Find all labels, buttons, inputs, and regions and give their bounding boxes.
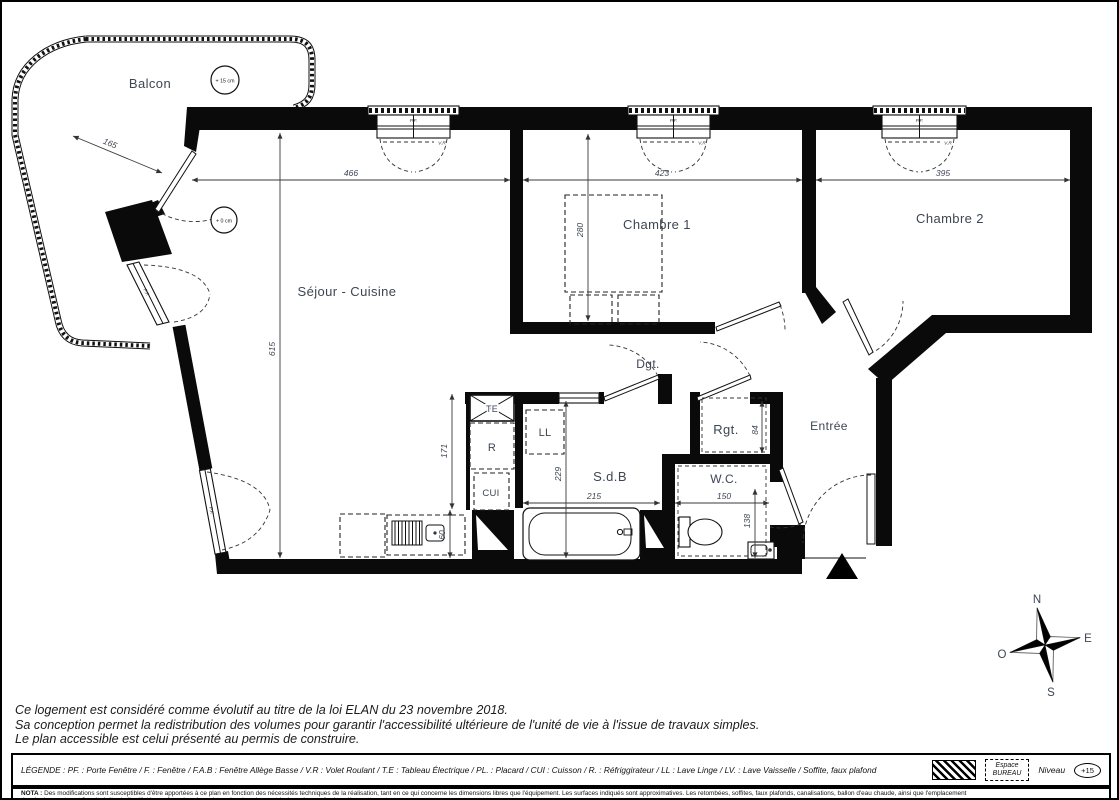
svg-text:84: 84	[750, 425, 760, 435]
svg-text:215: 215	[586, 491, 601, 501]
compass-rose: N E S O	[998, 594, 1093, 699]
compass-south: S	[1047, 687, 1055, 699]
svg-text:150: 150	[717, 491, 731, 501]
r-label: R	[488, 442, 496, 454]
balcon-label: Balcon	[129, 76, 171, 91]
note-line-3: Le plan accessible est celui présenté au…	[15, 732, 759, 747]
entree-label: Entrée	[810, 419, 848, 433]
entrance-arrow	[826, 553, 858, 579]
espace-line1: Espace	[993, 762, 1022, 770]
hatch-swatch	[932, 760, 976, 780]
elan-notes: Ce logement est considéré comme évolutif…	[15, 703, 759, 747]
window-sejour: P.F. V.R	[368, 106, 459, 172]
svg-text:138: 138	[742, 514, 752, 528]
svg-text:423: 423	[655, 168, 669, 178]
toilet	[679, 517, 722, 547]
cuisson: CUI	[474, 473, 509, 510]
vr-label: V.R	[698, 141, 706, 147]
cui-label: CUI	[482, 488, 499, 499]
note-line-1: Ce logement est considéré comme évolutif…	[15, 703, 759, 718]
bed-chambre1	[565, 195, 662, 324]
lave-linge: LL	[526, 410, 564, 454]
note-line-2: Sa conception permet la redistribution d…	[15, 718, 759, 733]
compass-north: N	[1033, 594, 1041, 606]
nota-bar: NOTA : Des modifications sont susceptibl…	[11, 787, 1111, 800]
svg-text:60: 60	[437, 530, 447, 540]
chambre2-label: Chambre 2	[916, 211, 984, 226]
floorplan-drawing: Balcon + 15 cm 165	[2, 2, 1119, 702]
dim-balcon-width: 165	[73, 136, 162, 173]
svg-text:171: 171	[439, 444, 449, 458]
compass-east: E	[1084, 633, 1092, 645]
bathtub	[523, 508, 640, 560]
ll-label: LL	[539, 427, 552, 439]
niveau-value-badge: +15	[1074, 763, 1101, 778]
balcon-level: + 15 cm	[216, 79, 236, 85]
legend-right: Espace BUREAU Niveau +15	[932, 759, 1101, 780]
pf-label: P.F.	[410, 118, 418, 124]
level-sejour: + 0 cm	[211, 207, 237, 233]
dgt-label: Dgt.	[636, 357, 660, 371]
vr-label: V.R	[944, 141, 952, 147]
compass-west: O	[998, 649, 1007, 661]
svg-text:229: 229	[553, 467, 563, 482]
wc-label: W.C.	[710, 472, 738, 486]
door-rgt	[697, 342, 751, 401]
window-chambre2: P.F. V.R	[873, 106, 966, 172]
refrigerator: R	[470, 423, 514, 469]
niveau-label: Niveau	[1038, 765, 1065, 775]
svg-text:+ 0 cm: + 0 cm	[216, 219, 233, 225]
espace-bureau-box: Espace BUREAU	[985, 759, 1030, 780]
te-label: TE	[486, 404, 498, 414]
window-chambre1: P.F. V.R	[628, 106, 719, 172]
door-chambre2	[843, 299, 903, 355]
sejour-label: Séjour - Cuisine	[298, 284, 397, 299]
svg-text:165: 165	[102, 136, 119, 151]
svg-text:280: 280	[575, 223, 585, 238]
balcony: Balcon + 15 cm 165	[15, 39, 312, 346]
tableau-electrique: TE	[470, 395, 514, 421]
dimensions: 466 423 395 615 280 171 229 215 150 138 …	[192, 133, 1070, 558]
vr-label: V.R	[438, 141, 446, 147]
door-entrance	[803, 474, 875, 544]
legend-text: LÉGENDE : PF. : Porte Fenêtre / F. : Fen…	[21, 765, 924, 775]
rgt-label: Rgt.	[713, 422, 738, 437]
chambre1-label: Chambre 1	[623, 217, 691, 232]
svg-text:395: 395	[936, 168, 950, 178]
door-sdb	[604, 345, 659, 401]
espace-line2: BUREAU	[993, 770, 1022, 778]
window-slant-upper: P.F.	[127, 262, 210, 325]
pf-label: P.F.	[670, 118, 678, 124]
svg-text:466: 466	[344, 168, 358, 178]
svg-text:615: 615	[267, 342, 277, 356]
sdb-wall-panel	[559, 393, 599, 403]
legend-bar: LÉGENDE : PF. : Porte Fenêtre / F. : Fen…	[11, 753, 1111, 787]
door-chambre1	[716, 302, 785, 331]
pf-label: P.F.	[916, 118, 924, 124]
sdb-label: S.d.B	[593, 469, 627, 484]
floorplan-page: Balcon + 15 cm 165	[0, 0, 1119, 800]
window-slant-lower: P.F.	[200, 469, 271, 555]
